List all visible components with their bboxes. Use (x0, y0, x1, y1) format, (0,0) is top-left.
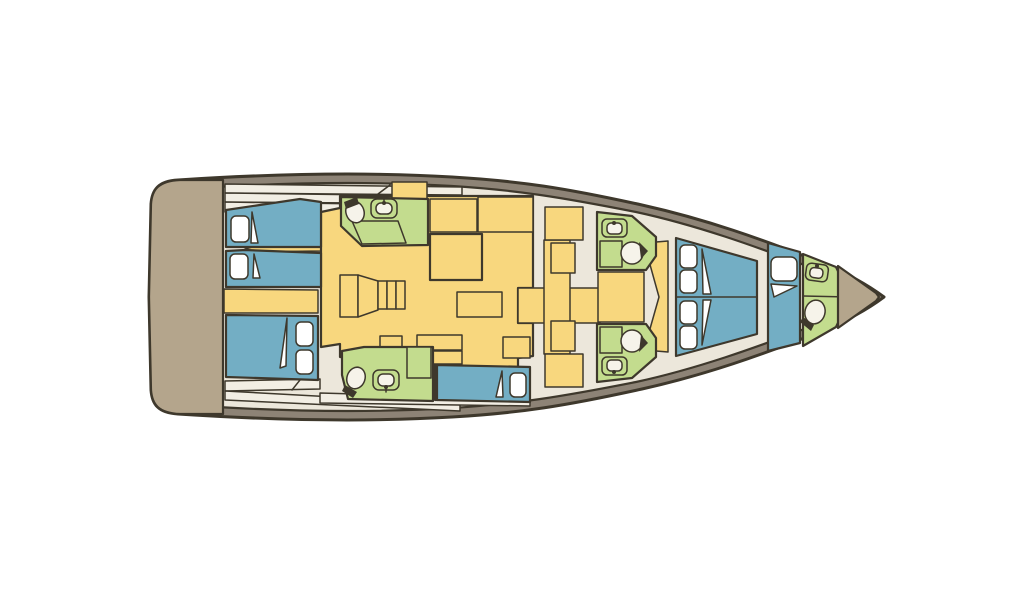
galley-counter (545, 354, 583, 387)
galley-sink-inset (551, 321, 575, 351)
aft-corridor-floor (224, 289, 318, 313)
stern-platform (149, 180, 223, 414)
galley-counter (478, 197, 533, 232)
pillow (680, 326, 697, 349)
sink-basin (607, 360, 622, 371)
shower-pan (600, 327, 622, 353)
cockpit-strip (225, 379, 320, 391)
forward-corridor-floor (598, 272, 644, 322)
galley-sink-inset (551, 243, 575, 273)
sink-basin (378, 374, 394, 386)
pillow (680, 245, 697, 268)
pillow (771, 257, 797, 281)
faucet-icon (815, 264, 819, 268)
sink-basin (809, 267, 823, 279)
shower-pan (600, 241, 622, 267)
shower-pan (352, 221, 406, 244)
pillow (680, 301, 697, 324)
pillow (510, 373, 526, 397)
companionway-steps (340, 275, 358, 317)
salon-seat (503, 337, 530, 358)
salon-coffee-table (457, 292, 502, 317)
faucet-icon (612, 221, 616, 225)
pillow (296, 322, 313, 346)
pillow (231, 216, 249, 242)
deck-plan-svg (0, 0, 1024, 600)
companionway-step (387, 281, 396, 309)
pillow (296, 350, 313, 374)
shower-pan (407, 347, 431, 378)
pillow (680, 270, 697, 293)
faucet-icon (612, 370, 616, 374)
companionway-step (396, 281, 405, 309)
companionway-step (378, 281, 387, 309)
pillow (230, 254, 248, 279)
companionway-steps (358, 275, 378, 317)
galley-counter (545, 207, 583, 240)
salon-table (430, 234, 482, 280)
galley-counter (430, 199, 477, 232)
yacht-layout-diagram (0, 0, 1024, 600)
